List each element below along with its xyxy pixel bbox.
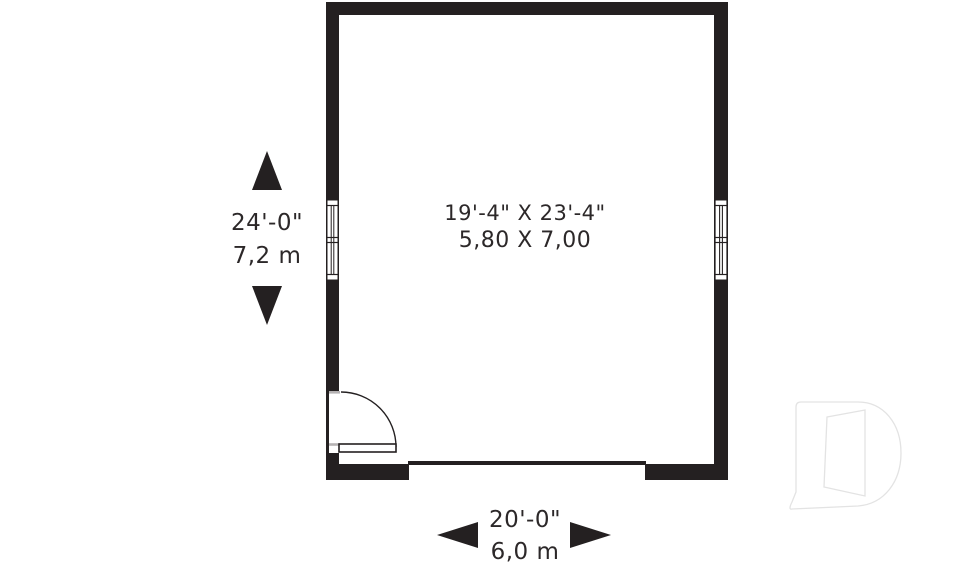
wall-bottom-right bbox=[645, 464, 728, 480]
wall-left-upper bbox=[326, 2, 339, 200]
room-size-metric: 5,80 X 7,00 bbox=[405, 227, 645, 255]
garage-door-opening-line bbox=[408, 461, 646, 466]
horizontal-dimension-metric: 6,0 m bbox=[465, 536, 585, 568]
builder-logo-watermark bbox=[788, 396, 908, 518]
window-icon-right bbox=[714, 199, 728, 281]
wall-top bbox=[326, 2, 728, 15]
wall-left-middle bbox=[326, 281, 339, 391]
vertical-dimension-label: 24'-0" 7,2 m bbox=[212, 207, 322, 273]
arrow-up-icon bbox=[252, 151, 282, 190]
vertical-dimension-feet: 24'-0" bbox=[212, 207, 322, 240]
arrow-down-icon bbox=[252, 286, 282, 325]
door-swing-icon bbox=[320, 385, 410, 460]
horizontal-dimension-feet: 20'-0" bbox=[465, 504, 585, 536]
room-size-imperial: 19'-4" X 23'-4" bbox=[405, 199, 645, 227]
room-dimension-label: 19'-4" X 23'-4" 5,80 X 7,00 bbox=[405, 199, 645, 255]
arrow-right-icon bbox=[570, 522, 611, 548]
floor-plan-canvas: 19'-4" X 23'-4" 5,80 X 7,00 24'-0" 7,2 m… bbox=[0, 0, 960, 569]
wall-right-lower bbox=[714, 281, 728, 480]
horizontal-dimension-label: 20'-0" 6,0 m bbox=[465, 504, 585, 568]
wall-bottom-left bbox=[326, 464, 409, 480]
wall-right-upper bbox=[714, 2, 728, 200]
vertical-dimension-metric: 7,2 m bbox=[212, 240, 322, 273]
window-icon-left bbox=[326, 199, 339, 281]
